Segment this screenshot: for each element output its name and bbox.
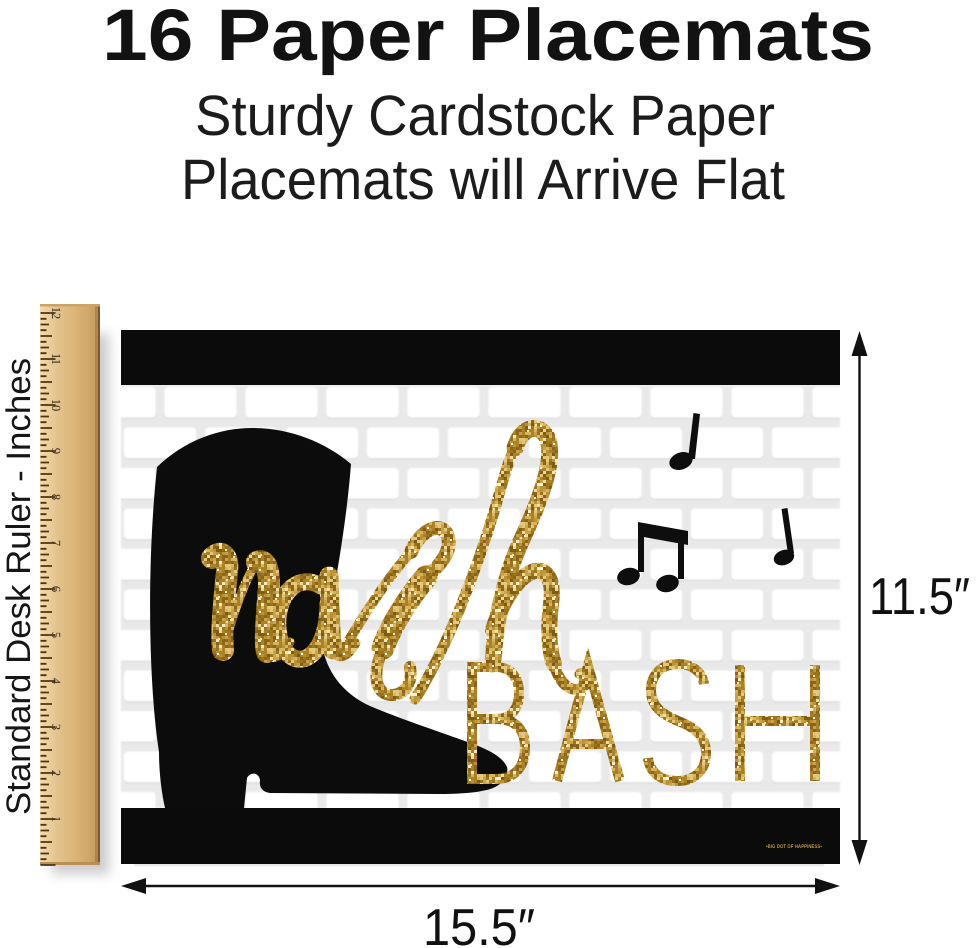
svg-text:7: 7 (49, 540, 63, 546)
svg-text:16 Paper Placemats: 16 Paper Placemats (102, 0, 874, 76)
svg-text:2: 2 (49, 770, 63, 776)
svg-text:1: 1 (49, 816, 63, 822)
svg-text:15.5″: 15.5″ (423, 899, 535, 948)
svg-text:12: 12 (49, 307, 63, 320)
svg-text:•BIG DOT OF HAPPINESS•: •BIG DOT OF HAPPINESS• (766, 844, 822, 850)
svg-text:Placemats will Arrive Flat: Placemats will Arrive Flat (181, 148, 785, 212)
svg-text:11: 11 (49, 353, 63, 365)
svg-text:9: 9 (49, 448, 63, 454)
svg-text:6: 6 (49, 586, 63, 592)
svg-text:5: 5 (49, 632, 63, 638)
svg-text:11.5″: 11.5″ (869, 568, 970, 626)
svg-text:3: 3 (49, 724, 63, 730)
svg-text:8: 8 (49, 494, 63, 500)
svg-text:Sturdy Cardstock Paper: Sturdy Cardstock Paper (195, 84, 775, 148)
svg-text:4: 4 (49, 678, 63, 685)
svg-text:Standard Desk Ruler - Inches: Standard Desk Ruler - Inches (0, 358, 38, 815)
svg-text:10: 10 (49, 399, 63, 412)
